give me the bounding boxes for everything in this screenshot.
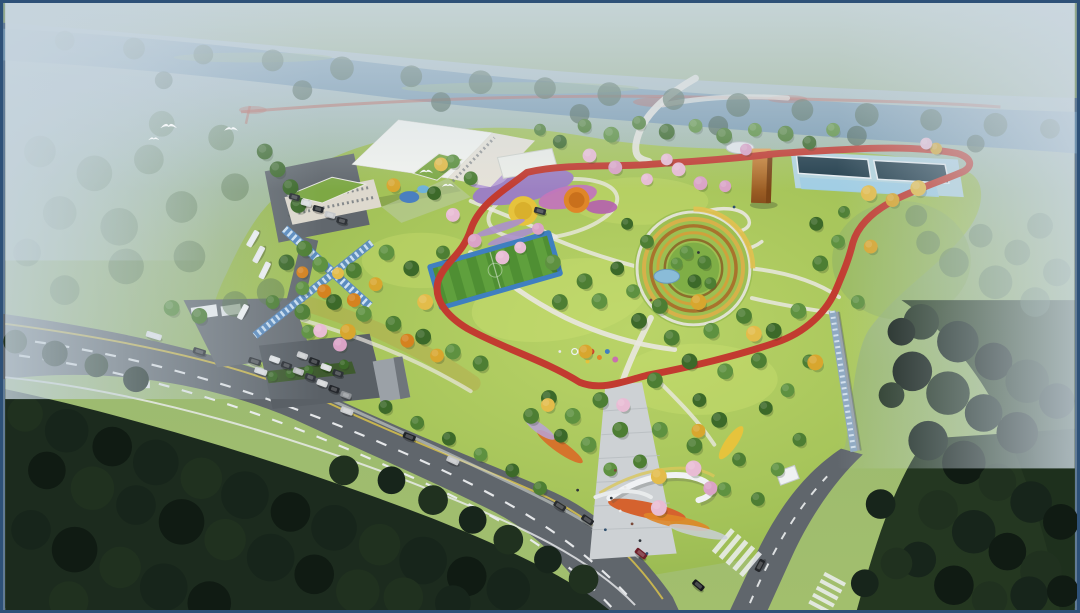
- tree-highlight: [633, 314, 641, 322]
- tree-highlight: [809, 356, 817, 364]
- tree: [140, 563, 188, 610]
- tree-highlight: [447, 345, 455, 353]
- person: [733, 206, 736, 209]
- tree: [359, 524, 401, 566]
- tree-highlight: [555, 430, 562, 437]
- tree: [569, 564, 599, 594]
- tree: [952, 510, 996, 554]
- tree-highlight: [653, 423, 661, 431]
- play-equipment: [597, 355, 602, 360]
- tree-highlight: [357, 307, 365, 315]
- tree-highlight: [542, 399, 549, 406]
- tree: [271, 492, 311, 532]
- tree-highlight: [507, 464, 514, 471]
- tree-highlight: [612, 262, 619, 269]
- tree-highlight: [687, 462, 695, 470]
- tree-highlight: [553, 295, 561, 303]
- tree-highlight: [334, 339, 341, 346]
- tree: [866, 489, 896, 519]
- tree: [45, 409, 89, 453]
- tree-highlight: [681, 247, 688, 254]
- tree-highlight: [443, 433, 450, 440]
- tree: [71, 466, 115, 510]
- tree-highlight: [342, 325, 350, 333]
- person: [639, 539, 642, 542]
- tree-highlight: [705, 482, 712, 489]
- tree-highlight: [622, 219, 628, 225]
- tree-highlight: [693, 425, 700, 432]
- tree-highlight: [782, 384, 789, 391]
- tree-highlight: [340, 360, 345, 365]
- person: [631, 522, 634, 525]
- tree-highlight: [417, 330, 425, 338]
- tree-highlight: [665, 331, 673, 339]
- tree-highlight: [475, 449, 482, 456]
- tree: [221, 471, 269, 519]
- tree-highlight: [752, 493, 759, 500]
- tree: [881, 548, 913, 580]
- tree-highlight: [543, 391, 551, 399]
- tree-highlight: [380, 401, 387, 408]
- tree: [459, 506, 487, 534]
- tree-highlight: [705, 324, 713, 332]
- tree-highlight: [348, 294, 355, 301]
- tree: [11, 510, 51, 550]
- tree: [493, 525, 523, 555]
- tree: [378, 466, 406, 494]
- tree: [159, 499, 205, 545]
- tree-highlight: [387, 317, 395, 325]
- tree-highlight: [683, 355, 691, 363]
- tree-highlight: [752, 354, 760, 362]
- tree-highlight: [380, 246, 388, 254]
- courtyard-playground-blue: [399, 191, 419, 203]
- tree-highlight: [694, 394, 701, 401]
- tree-highlight: [431, 350, 438, 357]
- tree-highlight: [419, 295, 427, 303]
- tree: [311, 505, 357, 551]
- tree: [99, 547, 141, 589]
- haze-corner: [5, 3, 223, 260]
- person: [650, 299, 653, 302]
- tree: [979, 463, 1017, 501]
- tree-highlight: [811, 218, 818, 225]
- tree-highlight: [634, 456, 641, 463]
- tree-highlight: [733, 454, 740, 461]
- tree-highlight: [497, 252, 504, 259]
- ring-pond: [654, 269, 680, 283]
- tree-highlight: [706, 278, 712, 284]
- tree: [534, 546, 562, 574]
- park-aerial-rendering: [3, 3, 1077, 610]
- yellow-flower-circle-core: [514, 202, 532, 220]
- tree: [116, 485, 156, 525]
- person: [614, 469, 617, 472]
- person: [576, 489, 579, 492]
- tree-highlight: [578, 275, 586, 283]
- tree-highlight: [333, 268, 339, 274]
- tree-highlight: [618, 399, 625, 406]
- tree-highlight: [767, 324, 775, 332]
- tree-highlight: [719, 483, 726, 490]
- tree-highlight: [412, 417, 419, 424]
- tree: [989, 533, 1027, 571]
- tree-highlight: [641, 236, 648, 243]
- tree-highlight: [534, 482, 541, 489]
- tree: [52, 527, 98, 573]
- tree-highlight: [525, 409, 533, 417]
- play-equipment: [605, 349, 610, 354]
- tree-highlight: [566, 409, 574, 417]
- tree-highlight: [738, 309, 746, 317]
- tree: [28, 452, 66, 490]
- tree-highlight: [719, 365, 727, 373]
- tree-highlight: [547, 256, 555, 264]
- person: [558, 350, 561, 353]
- tree: [934, 565, 974, 605]
- tree-highlight: [593, 294, 601, 302]
- tree-highlight: [402, 335, 409, 342]
- tree-highlight: [814, 257, 822, 265]
- tree-highlight: [405, 262, 413, 270]
- tree-highlight: [614, 423, 622, 431]
- tree-highlight: [605, 463, 612, 470]
- person: [646, 552, 649, 555]
- person: [604, 528, 607, 531]
- tree-highlight: [748, 327, 756, 335]
- tree-highlight: [515, 243, 521, 249]
- tree: [181, 458, 223, 500]
- tree: [92, 427, 132, 467]
- tree: [7, 396, 43, 432]
- tree-highlight: [649, 374, 657, 382]
- person: [619, 510, 622, 513]
- tree: [294, 555, 334, 595]
- tree-highlight: [689, 275, 696, 282]
- tree-highlight: [469, 235, 476, 242]
- magenta-flower-dot: [586, 200, 618, 214]
- tree: [487, 567, 531, 610]
- tree-highlight: [580, 346, 587, 353]
- framed-rendering: [0, 0, 1080, 613]
- tree-highlight: [792, 304, 800, 312]
- tree-highlight: [594, 393, 602, 401]
- tree: [399, 537, 447, 585]
- tree-highlight: [628, 285, 635, 292]
- person: [610, 497, 613, 500]
- tree-highlight: [699, 257, 706, 264]
- tree: [418, 485, 448, 515]
- tree-highlight: [370, 278, 377, 285]
- person: [697, 251, 700, 254]
- tree-highlight: [474, 357, 482, 365]
- tree-highlight: [760, 402, 767, 409]
- tree-highlight: [713, 413, 721, 421]
- haze-right: [837, 3, 1075, 468]
- tree: [1043, 504, 1077, 540]
- tree-highlight: [533, 224, 539, 230]
- tree: [918, 490, 958, 530]
- tree: [851, 569, 879, 597]
- tree: [329, 456, 359, 486]
- tree-highlight: [652, 501, 660, 509]
- tree-highlight: [348, 264, 356, 272]
- tree-highlight: [692, 295, 700, 303]
- tree-highlight: [437, 247, 444, 254]
- play-equipment: [612, 357, 618, 363]
- tree: [133, 440, 179, 486]
- tree: [204, 519, 246, 561]
- tree-highlight: [653, 299, 661, 307]
- tree-highlight: [772, 463, 779, 470]
- tree-highlight: [652, 470, 660, 478]
- tree: [247, 534, 295, 582]
- ring-garden: [634, 209, 753, 328]
- tree-highlight: [447, 209, 454, 216]
- orange-flower-circle-core: [569, 192, 585, 208]
- tree-highlight: [582, 438, 590, 446]
- person: [624, 486, 627, 489]
- tree-highlight: [688, 439, 696, 447]
- tree-highlight: [794, 434, 801, 441]
- tree-highlight: [672, 258, 678, 264]
